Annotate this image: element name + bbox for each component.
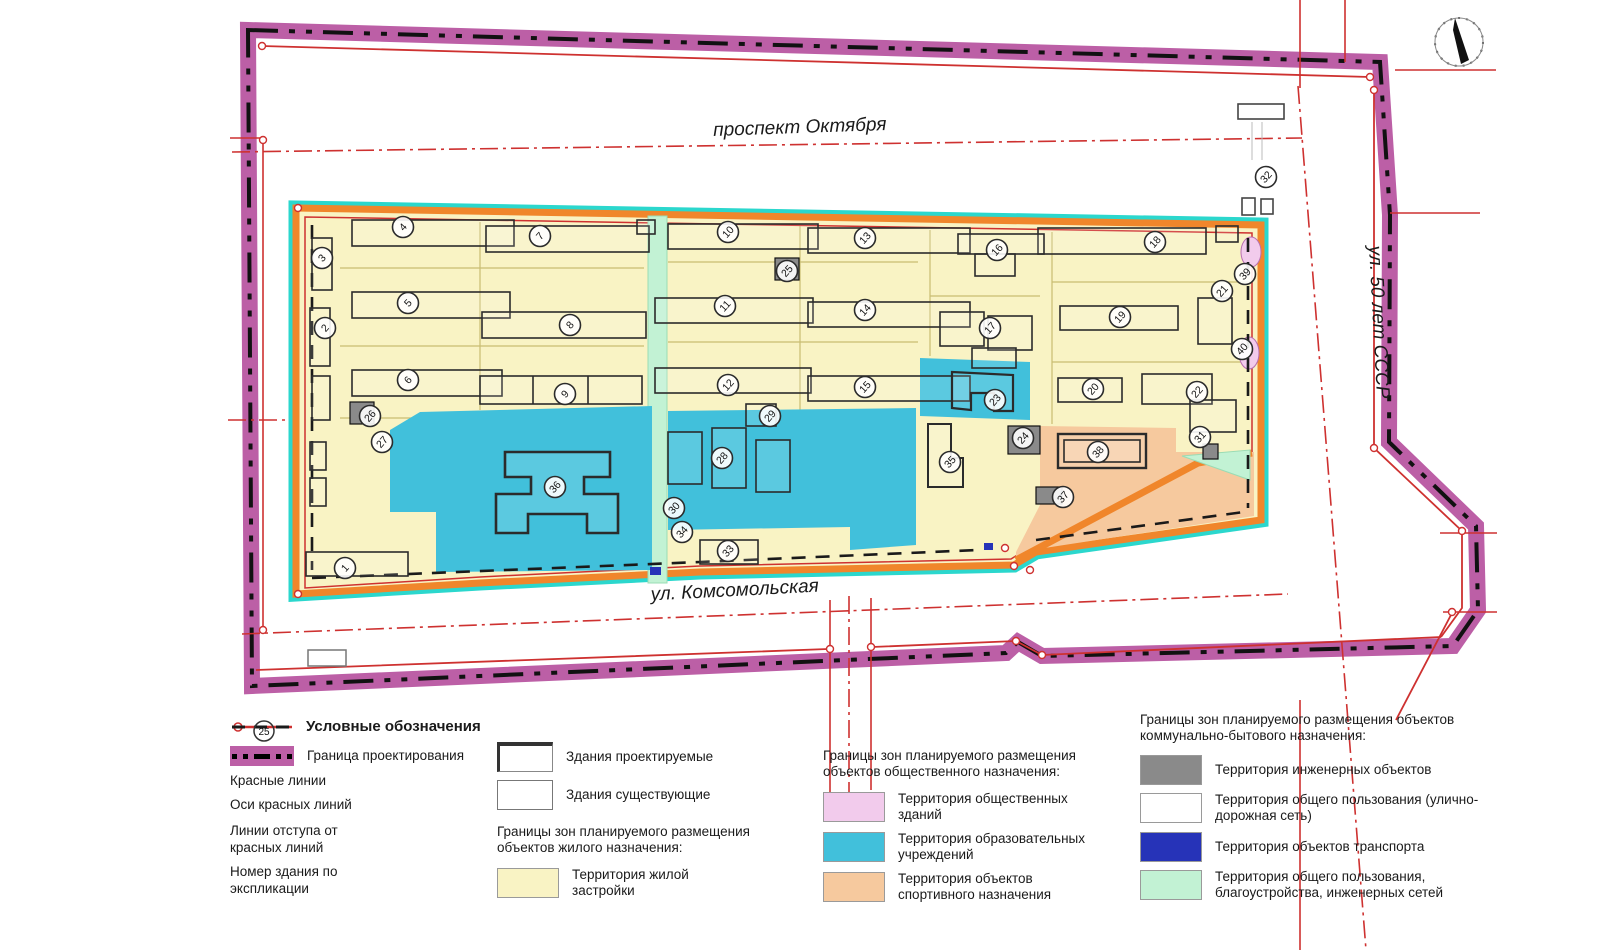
legend-column-lines: Условные обозначения Граница проектирова…: [230, 718, 500, 904]
street-objects: [1238, 104, 1284, 215]
legend-item-common-use: Территория общего пользования (улично-до…: [1140, 792, 1480, 825]
new-building-swatch: [497, 742, 553, 772]
svg-text:25: 25: [258, 727, 270, 738]
sport-swatch: [823, 872, 885, 902]
common-use-swatch: [1140, 793, 1202, 823]
legend-residential-title: Границы зон планируемого размещения объе…: [497, 824, 797, 857]
legend-item-red-axes: Оси красных линий: [230, 797, 500, 813]
legend-item-red-lines: Красные линии: [230, 773, 500, 789]
boundary-swatch: [230, 746, 294, 766]
residential-swatch: [497, 868, 559, 898]
legend-item-engineering: Территория инженерных объектов: [1140, 755, 1480, 785]
legend-item-green-common: Территория общего пользования, благоустр…: [1140, 869, 1480, 902]
legend-item-buildings-existing: Здания существующие: [497, 780, 807, 810]
north-arrow-icon: [1435, 18, 1483, 66]
existing-building-outline: [308, 650, 346, 666]
street-label-prospekt-oktyabrya: проспект Октября: [713, 114, 887, 141]
green-common-swatch: [1140, 870, 1202, 900]
plan-sheet: 1234567891011121314151617181920212223242…: [0, 0, 1600, 952]
legend-item-transport: Территория объектов транспорта: [1140, 832, 1480, 862]
legend-column-communal: Границы зон планируемого размещения объе…: [1140, 712, 1480, 909]
legend-item-building-number: 25 Номер здания по экспликации: [230, 864, 500, 897]
legend-item-boundary: Граница проектирования: [230, 746, 500, 766]
public-buildings-swatch: [823, 792, 885, 822]
legend-item-buildings-new: Здания проектируемые: [497, 742, 807, 772]
legend-public-title: Границы зон планируемого размещения объе…: [823, 748, 1123, 781]
building-number-swatch: 25: [230, 718, 294, 744]
legend-item-education: Территория образовательных учреждений: [823, 831, 1123, 864]
legend-communal-title: Границы зон планируемого размещения объе…: [1140, 712, 1480, 745]
engineering-swatch: [1140, 755, 1202, 785]
legend-item-residential: Территория жилой застройки: [497, 867, 807, 900]
transport-swatch: [1140, 832, 1202, 862]
legend-item-sport: Территория объектов спортивного назначен…: [823, 871, 1123, 904]
existing-building-swatch: [497, 780, 553, 810]
legend-column-public: Границы зон планируемого размещения объе…: [823, 748, 1123, 911]
legend-column-buildings: Здания проектируемые Здания существующие…: [497, 742, 807, 907]
legend-title: Условные обозначения: [306, 718, 500, 736]
legend-item-public-buildings: Территория общественных зданий: [823, 791, 1123, 824]
legend-item-setback: Линии отступа от красных линий: [230, 823, 500, 856]
education-swatch: [823, 832, 885, 862]
